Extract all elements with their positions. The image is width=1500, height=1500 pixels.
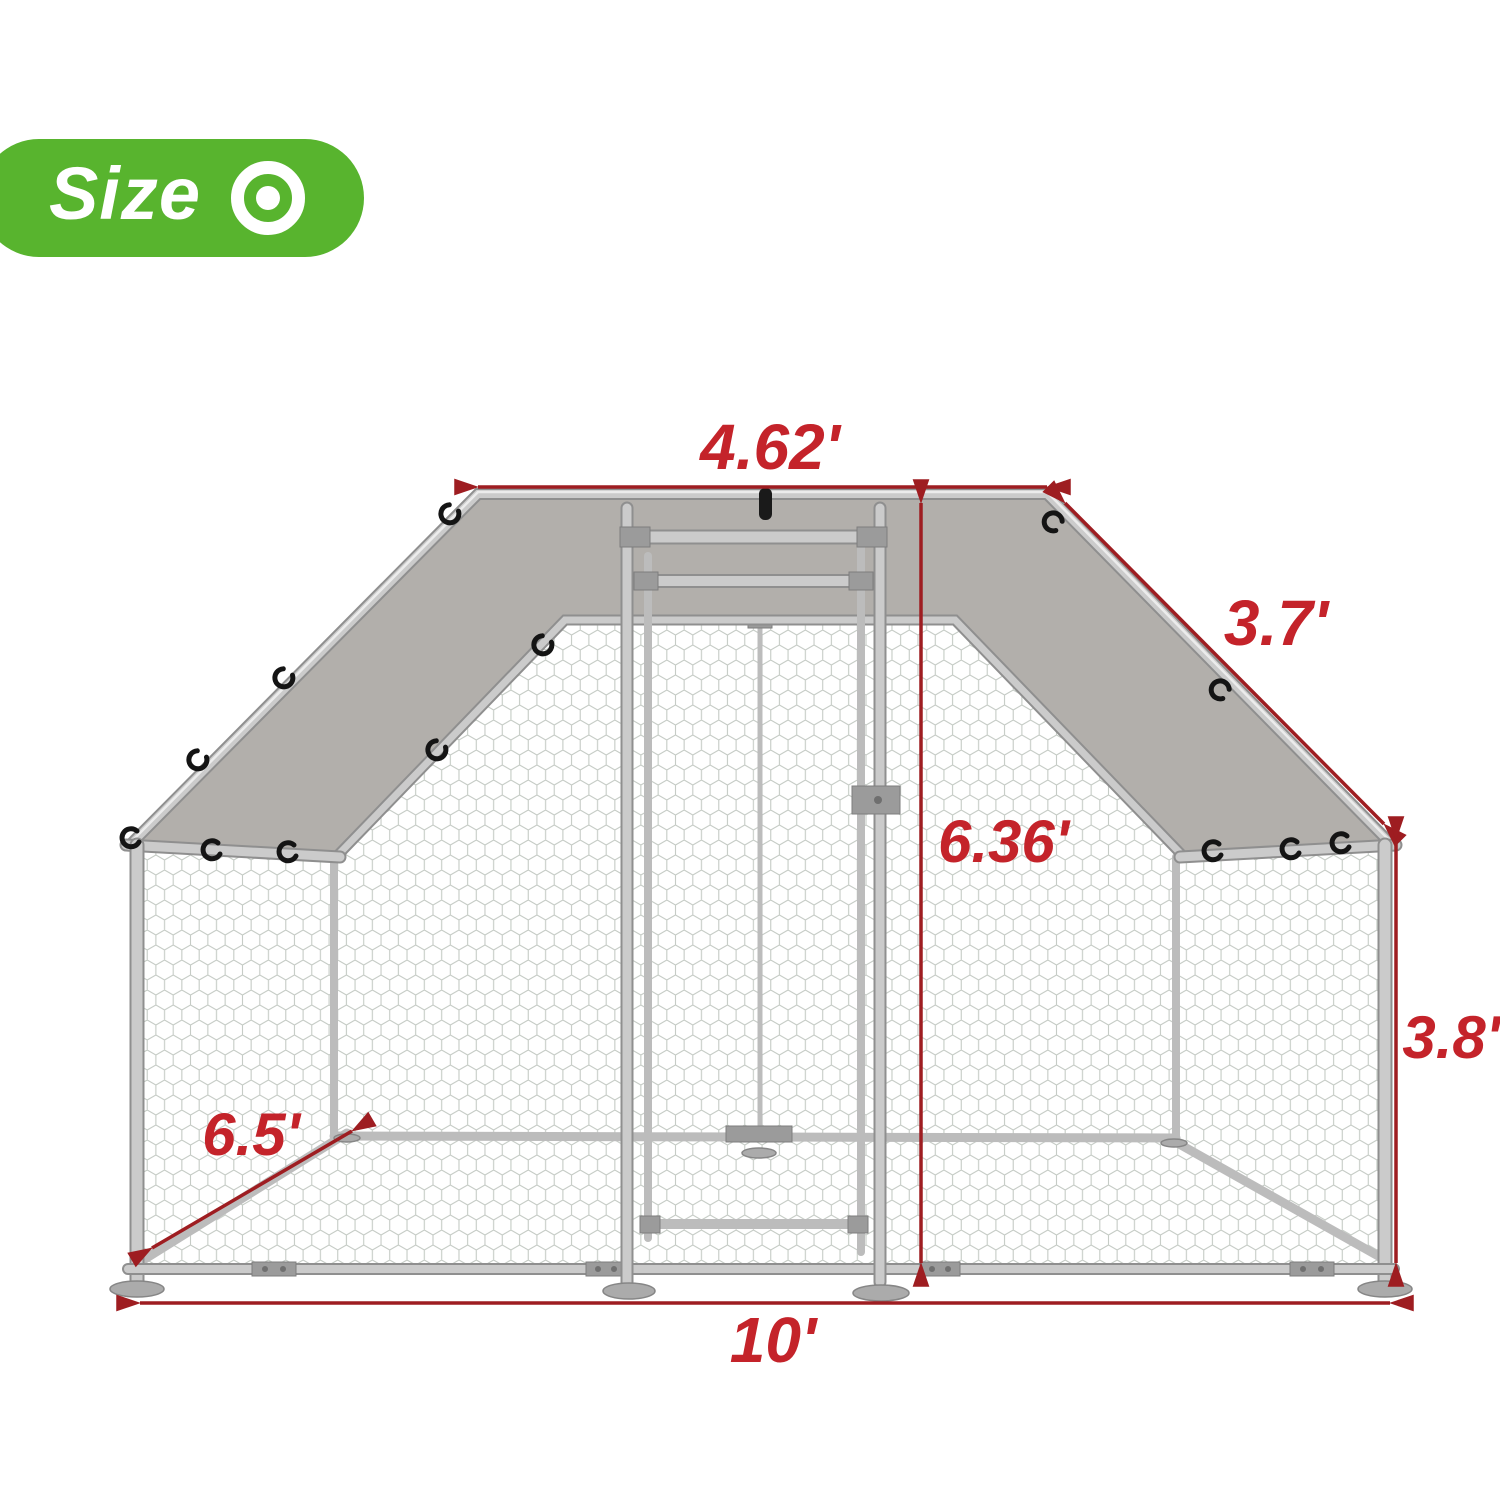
center-pole-flange [742, 1148, 776, 1158]
top-width-label: 4.62' [698, 411, 842, 483]
door-bracket-bl [640, 1216, 660, 1233]
door-height-label: 6.36' [938, 808, 1071, 875]
rail-plate-3 [920, 1262, 960, 1276]
door-bracket-mr [849, 572, 873, 590]
flange-front-right [1358, 1281, 1412, 1297]
rail-plate-4 [1290, 1262, 1334, 1276]
side-height-label: 3.8' [1402, 1004, 1500, 1071]
door-bracket-tl [620, 527, 650, 547]
roof-slope-label: 3.7' [1224, 587, 1330, 659]
flange-front-left [110, 1281, 164, 1297]
door-bracket-br [848, 1216, 868, 1233]
center-pole-base-bracket [726, 1126, 792, 1142]
door-bracket-ml [634, 572, 658, 590]
depth-label: 6.5' [202, 1101, 301, 1168]
top-clamp [759, 488, 772, 520]
size-badge: Size [0, 139, 364, 257]
rail-plate-1 [252, 1262, 296, 1276]
size-badge-label: Size [39, 157, 201, 239]
door-bracket-tr [857, 527, 887, 547]
rail-plate-2 [586, 1262, 626, 1276]
flange-door-right [853, 1285, 909, 1301]
size-diagram-canvas: 4.62' 3.7' 6.36' 3.8' 6.5' 10' Size [0, 0, 1500, 1500]
back-right-flange [1161, 1139, 1187, 1147]
bottom-width-label: 10' [730, 1304, 818, 1376]
flange-door-left [603, 1283, 655, 1299]
target-icon [231, 161, 305, 235]
base-flanges [110, 1281, 1412, 1301]
